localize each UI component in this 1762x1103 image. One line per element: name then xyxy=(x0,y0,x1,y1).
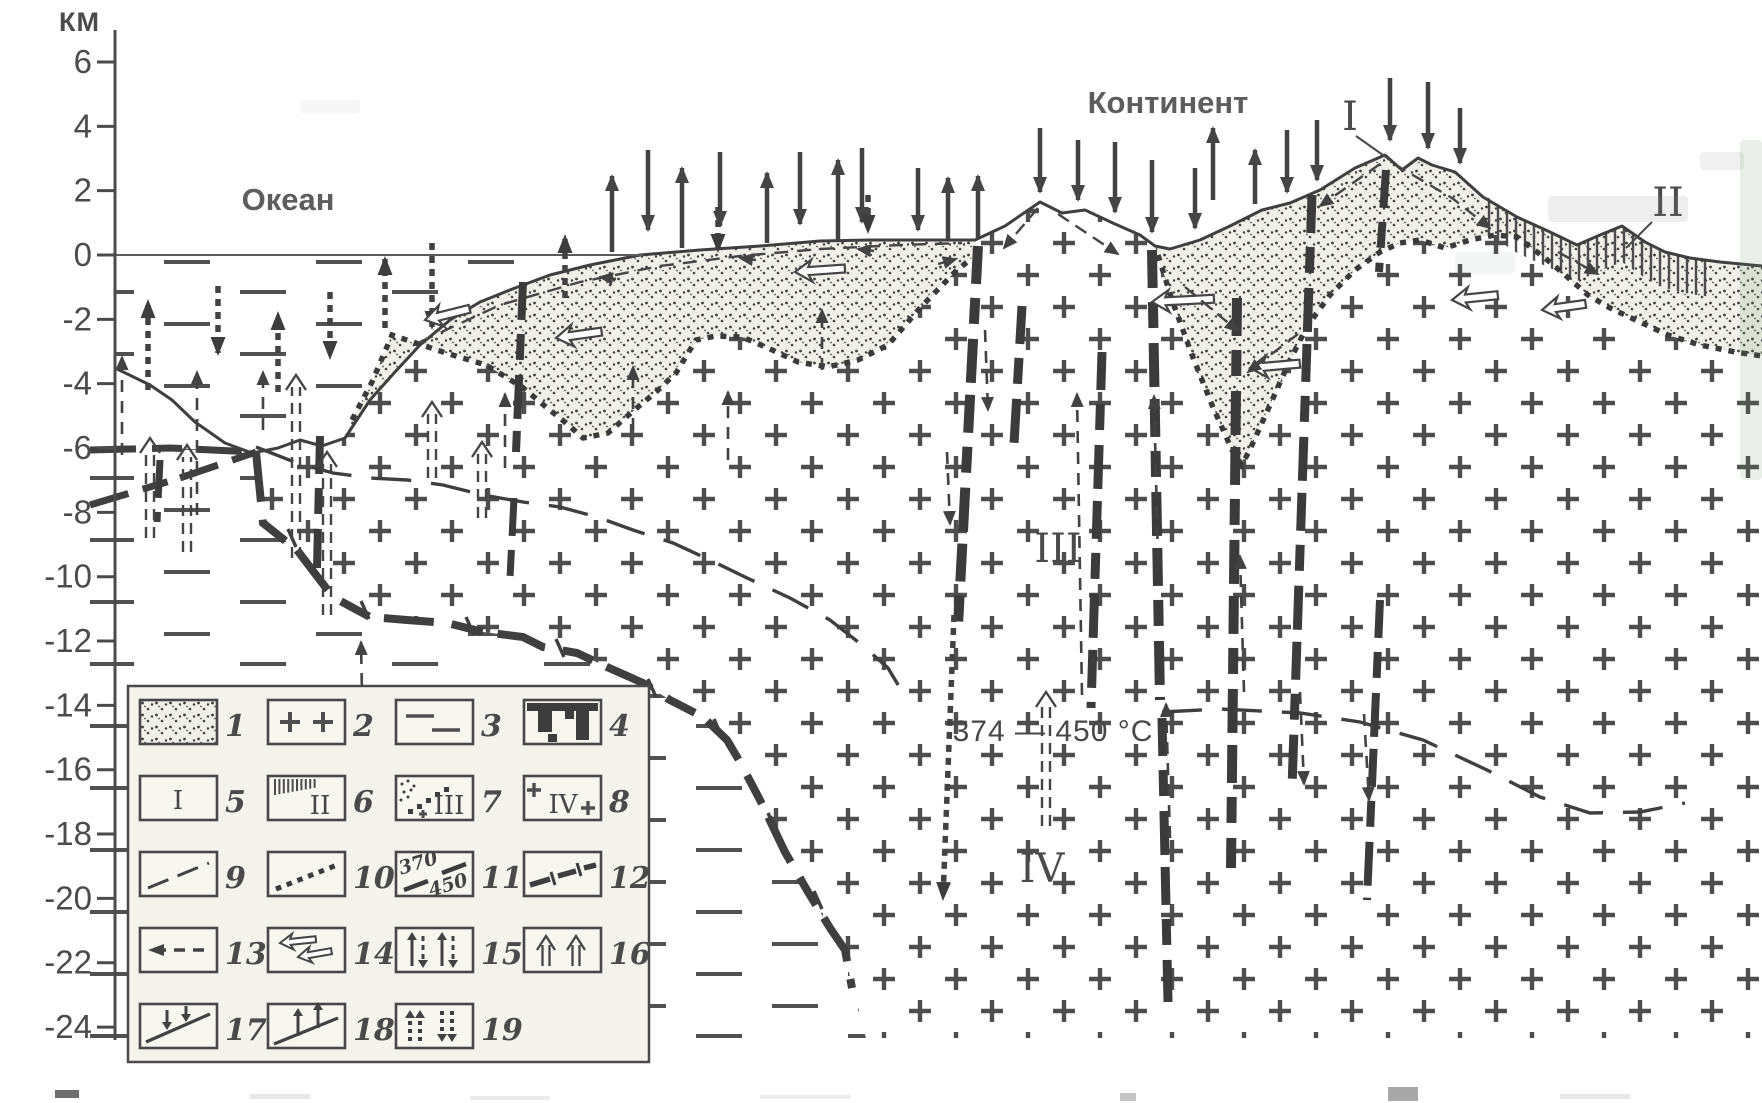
legend-icon-3 xyxy=(396,700,473,744)
legend-item-number: 17 xyxy=(225,1013,267,1048)
legend-icon-17 xyxy=(140,1004,217,1048)
legend-icon-10 xyxy=(268,852,345,896)
legend-item-number: 18 xyxy=(353,1013,395,1048)
geological-cross-section: КМ 6420-2-4-6-8-10-12-14-16-18-20-22-24 … xyxy=(0,0,1762,1103)
axis-tick-label: 4 xyxy=(74,107,92,144)
cropped-caption-fragment xyxy=(1388,1087,1418,1101)
cropped-caption-fragment xyxy=(470,1096,550,1100)
fault-dike xyxy=(317,436,320,568)
axis-tick-label: -20 xyxy=(44,879,92,916)
axis-tick-label: -22 xyxy=(44,944,92,981)
axis-tick-label: 2 xyxy=(74,172,92,209)
axis-tick-label: 6 xyxy=(74,43,92,80)
cropped-caption-fragment xyxy=(1120,1093,1136,1101)
legend-item-number: 2 xyxy=(352,709,374,744)
legend-item-number: 7 xyxy=(481,785,502,820)
axis-tick-label: 0 xyxy=(74,236,92,273)
axis-tick-label: -14 xyxy=(44,686,92,723)
ocean-label: Океан xyxy=(242,182,335,217)
scan-smudge xyxy=(1700,152,1744,170)
legend-item-number: 4 xyxy=(609,709,630,744)
legend-item-number: 16 xyxy=(609,937,651,972)
legend-icon-6: II xyxy=(268,776,345,821)
cropped-caption-fragment xyxy=(1560,1094,1630,1099)
legend-item-number: 15 xyxy=(481,937,523,972)
axis-tick-label: -24 xyxy=(44,1008,92,1045)
scan-smudge xyxy=(1740,140,1762,480)
legend-icon-9 xyxy=(140,852,217,896)
legend-icon-8: IV xyxy=(524,776,601,820)
zone-IV-label: IV xyxy=(1020,846,1066,892)
svg-text:IV: IV xyxy=(548,790,578,820)
svg-text:I: I xyxy=(173,786,183,816)
legend-item-number: 3 xyxy=(481,709,502,744)
legend-item-number: 12 xyxy=(609,861,651,896)
legend-icon-13 xyxy=(140,928,217,972)
axis-tick-label: -12 xyxy=(44,622,92,659)
zone-I-label: I xyxy=(1342,94,1358,140)
zone-III-label: III xyxy=(1034,526,1081,572)
legend-item-number: 9 xyxy=(225,861,246,896)
zone-I-leader-line xyxy=(1356,136,1390,160)
legend-icon-19 xyxy=(396,1004,473,1048)
legend-icon-11: 370450 xyxy=(396,847,473,902)
legend-item-number: 5 xyxy=(225,785,246,820)
legend-icon-2 xyxy=(268,700,345,744)
scan-smudge xyxy=(1548,196,1688,222)
axis-tick-label: -4 xyxy=(63,365,92,402)
legend-item-number: 10 xyxy=(353,861,395,896)
axis-tick-label: -18 xyxy=(44,815,92,852)
legend-item-number: 19 xyxy=(481,1013,523,1048)
cropped-caption-fragment xyxy=(760,1095,850,1099)
axis-unit-label: КМ xyxy=(59,7,100,37)
legend-icon-15 xyxy=(396,928,473,972)
legend-icon-12 xyxy=(524,852,601,896)
legend-icon-1 xyxy=(140,700,217,744)
figure-page: КМ 6420-2-4-6-8-10-12-14-16-18-20-22-24 … xyxy=(0,0,1762,1103)
axis-tick-label: -8 xyxy=(63,493,92,530)
continent-label: Континент xyxy=(1088,85,1249,120)
legend-item-number: 8 xyxy=(608,785,630,820)
isotherm-label: 374 — 450 °C xyxy=(953,715,1154,748)
legend-icon-16 xyxy=(524,928,601,972)
fault-dike xyxy=(157,460,160,522)
axis-tick-label: -10 xyxy=(44,558,92,595)
legend: 1234I5II6III7IV8910370450111213141516171… xyxy=(128,686,651,1062)
svg-text:III: III xyxy=(434,791,465,821)
legend-icon-5: I xyxy=(140,776,217,820)
axis-tick-label: -2 xyxy=(63,300,92,337)
legend-item-number: 6 xyxy=(353,785,374,820)
axis-tick-label: -16 xyxy=(44,751,92,788)
axis-tick-label: -6 xyxy=(63,429,92,466)
legend-item-number: 13 xyxy=(225,937,267,972)
svg-text:II: II xyxy=(310,791,331,821)
legend-icon-4 xyxy=(524,700,601,744)
legend-item-number: 14 xyxy=(353,937,395,972)
legend-icon-18 xyxy=(268,1002,345,1048)
cropped-caption-fragment xyxy=(250,1094,310,1099)
cropped-caption-fragment xyxy=(55,1090,79,1098)
legend-icon-7: III xyxy=(396,776,473,821)
legend-item-number: 11 xyxy=(481,861,523,896)
scan-smudge xyxy=(300,100,360,114)
legend-item-number: 1 xyxy=(225,709,246,744)
legend-icon-14 xyxy=(268,928,345,972)
scan-smudge xyxy=(1455,252,1515,274)
